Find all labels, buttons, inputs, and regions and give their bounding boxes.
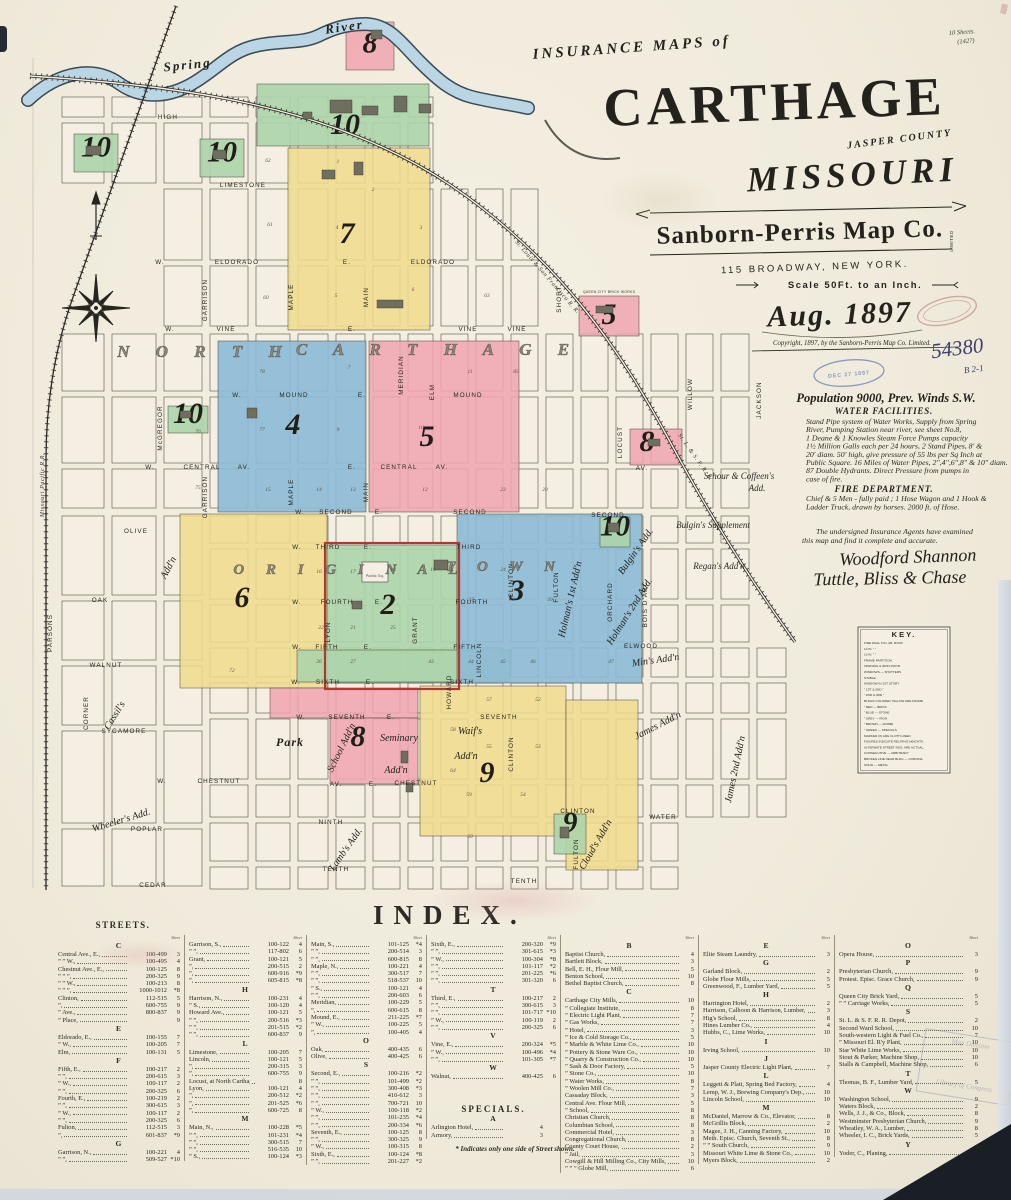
dotted-leader: [915, 1083, 963, 1084]
city-block: [651, 683, 678, 713]
index-entry-name: ” Marble & White Lime Co.,: [565, 1041, 639, 1048]
key-line: FIGURES INDICATE RELATIVE HEIGHTS: [864, 740, 923, 744]
dotted-leader: [202, 1007, 249, 1008]
dotted-leader: [627, 1068, 679, 1069]
street-label: FIFTH: [315, 644, 338, 651]
index-entry-name: ” ”,: [431, 977, 440, 984]
index-row: Grant,100-1215: [189, 956, 302, 963]
index-entry-range: 200-516: [251, 1017, 289, 1024]
dotted-leader: [633, 1039, 679, 1040]
street-label: GRANT: [412, 616, 419, 644]
index-entry-range: 201-225: [505, 970, 543, 977]
city-block: [164, 829, 202, 886]
index-row: Mound, E.,211-225*7: [311, 1014, 422, 1021]
block-number: 12: [422, 487, 428, 493]
index-entry-sheet: 7: [965, 1032, 978, 1039]
index-row: Fifth, E.,100-2172: [58, 1066, 180, 1073]
index-entry-sheet: *9: [167, 1132, 180, 1139]
index-entry-range: 200-615: [129, 1073, 167, 1080]
index-entry-sheet: 9: [965, 1118, 978, 1125]
block-number: 25: [390, 625, 396, 631]
area-label: Park: [276, 735, 304, 749]
index-entry-range: 100-499: [129, 951, 167, 958]
index-entry-name: ” ”,: [431, 970, 440, 977]
index-entry-range: 301-615: [505, 948, 543, 955]
title-publisher-suffix: LIMITED: [949, 230, 954, 252]
dotted-leader: [200, 1144, 249, 1145]
index-entry-sheet: *10: [543, 1009, 556, 1016]
area-label: Add'n: [453, 751, 477, 762]
index-letter-header: G: [58, 1139, 180, 1149]
street-label: CLINTON: [560, 808, 595, 815]
index-row: ” Ice & Cold Storage Co.,5: [565, 1034, 694, 1041]
dotted-leader: [207, 960, 249, 961]
index-entry-sheet: 10: [409, 1100, 422, 1107]
dotted-leader: [598, 1075, 679, 1076]
index-entry-sheet: 5: [965, 1132, 978, 1139]
index-entry-sheet: 2: [167, 1095, 180, 1102]
title-publisher: Sanborn-Perris Map Co.: [656, 215, 943, 249]
index-row: ” ”,200-6153: [58, 1073, 180, 1080]
dotted-leader: [475, 1129, 503, 1130]
index-entry-name: McGrillis Block,: [703, 1120, 746, 1127]
fire-department-title: FIRE DEPARTMENT.: [834, 484, 934, 494]
index-entry-name: Christian Church,: [565, 1114, 610, 1121]
city-block: [721, 648, 749, 677]
area-label: Seminary: [380, 733, 418, 744]
city-block: [298, 719, 328, 779]
index-entry-name: Wells, J. J., & Co., Block,: [839, 1110, 905, 1117]
note-line: Ladder Truck, drawn by horses. 2000 ft. …: [805, 502, 959, 511]
index-entry-name: Garrison, N.,: [58, 1149, 91, 1156]
city-block: [441, 189, 468, 260]
block-number: 58: [450, 727, 456, 733]
city-block: [164, 731, 202, 823]
index-entry-range: 3: [505, 1132, 543, 1139]
index-entry-range: 100-213: [129, 980, 167, 987]
dotted-leader: [322, 1104, 369, 1105]
dotted-leader: [69, 1107, 127, 1108]
index-row: Howard Ave.,100-1215: [189, 1009, 302, 1016]
index-row: ” ”,300-3259: [311, 1136, 422, 1143]
index-letter-header: W: [431, 1063, 556, 1073]
dotted-leader: [607, 956, 679, 957]
index-entry-name: ” ” W.,: [58, 980, 75, 987]
street-label: WALNUT: [90, 662, 123, 669]
index-entry-name: Chestnut Ave., E.,: [58, 966, 104, 973]
city-block: [62, 829, 104, 886]
index-row: ” ”,101-305*7: [431, 1056, 556, 1063]
index-row: Bethel Baptist Church,8: [565, 980, 694, 987]
dotted-leader: [322, 982, 369, 983]
index-entry-name: Wheatley, W. A., Lumber,: [839, 1125, 905, 1132]
index-entry-sheet: 2: [817, 1000, 830, 1007]
index-entry-sheet: *3: [543, 948, 556, 955]
block-number: 21: [350, 625, 356, 631]
index-entry-sheet: 5: [965, 993, 978, 1000]
dotted-leader: [921, 1059, 963, 1060]
index-entry-name: ”,: [189, 1100, 193, 1107]
street-label: HIGH: [158, 114, 178, 121]
index-entry-sheet: 2: [817, 1157, 830, 1164]
index-entry-name: Maple, N.,: [311, 963, 338, 970]
dotted-leader: [200, 1151, 249, 1152]
index-entry-sheet: 6: [409, 1053, 422, 1060]
street-label: LIMESTONE: [220, 182, 266, 189]
page-edge-bottom: [0, 1189, 1011, 1200]
index-entry-name: ” ”,: [431, 1056, 440, 1063]
dotted-leader: [616, 1134, 679, 1135]
street-label: FULTON: [553, 571, 560, 602]
index-entry-name: ” ”,: [431, 1009, 440, 1016]
dotted-leader: [458, 1000, 504, 1001]
index-row: Globe Flour Mills,5: [703, 976, 830, 983]
index-row: ” ”,301-615*3: [431, 948, 556, 955]
index-entry-sheet: 3: [289, 1063, 302, 1070]
street-label: SEVENTH: [480, 714, 517, 721]
dotted-leader: [83, 1071, 127, 1072]
index-row: Maple, N.,100-2214: [311, 963, 422, 970]
index-entry-range: 410-612: [371, 1092, 409, 1099]
street-label: CEDAR: [139, 882, 167, 889]
index-entry-range: 301-320: [505, 977, 543, 984]
dotted-leader: [200, 953, 249, 954]
city-block: [546, 469, 573, 508]
block-number: 19: [430, 567, 436, 573]
index-entry-sheet: 3: [543, 1002, 556, 1009]
index-entry-sheet: 4: [817, 1081, 830, 1088]
dotted-leader: [102, 956, 127, 957]
index-entry-sheet: 8: [681, 1078, 694, 1085]
city-block: [112, 469, 156, 508]
dotted-leader: [925, 1037, 963, 1038]
index-entry-sheet: 3: [167, 1102, 180, 1109]
block-number: 2: [372, 187, 375, 193]
dotted-leader: [895, 973, 963, 974]
street-label: E.: [366, 679, 374, 686]
index-letter-header: T: [431, 985, 556, 995]
dotted-leader: [750, 1005, 815, 1006]
key-line: ” 1ST & 2ND ”: [864, 687, 883, 691]
street-label: SECOND: [591, 512, 625, 519]
index-row: ” W.,100-118*2: [311, 1107, 422, 1114]
index-row: Stout & Parker, Machine Shop,10: [839, 1054, 978, 1061]
dotted-leader: [336, 946, 369, 947]
block-number: 76: [195, 429, 201, 435]
city-block: [112, 397, 156, 463]
dotted-leader: [455, 1046, 503, 1047]
index-row: ” Stone Co.,10: [565, 1070, 694, 1077]
sheet-number: 5: [602, 298, 617, 331]
dotted-leader: [77, 963, 127, 964]
dotted-leader: [795, 1069, 815, 1070]
index-entry-name: Fifth, E.,: [58, 1066, 81, 1073]
building-footprint: [303, 112, 312, 119]
index-row: Chestnut Ave., E.,100-1258: [58, 966, 180, 973]
dotted-leader: [767, 1034, 815, 1035]
index-entry-name: ” Gas Works,: [565, 1019, 599, 1026]
building-footprint: [560, 827, 569, 838]
dotted-leader: [748, 1125, 815, 1126]
index-entry-name: ” Ice & Cold Storage Co.,: [565, 1034, 631, 1041]
index-entry-name: Second, E.,: [311, 1070, 340, 1077]
index-row: Harrington Hotel,2: [703, 1000, 830, 1007]
city-block: [441, 266, 468, 326]
street-label: NINTH: [319, 819, 344, 826]
dotted-leader: [907, 1130, 963, 1131]
street-label: CLINTON: [508, 736, 515, 771]
index-entry-sheet: 7: [409, 970, 422, 977]
index-entry-sheet: 2: [543, 995, 556, 1002]
dotted-leader: [73, 992, 127, 993]
index-entry-sheet: *4: [543, 1049, 556, 1056]
index-entry-name: Howard Ave.,: [189, 1009, 224, 1016]
city-block: [757, 648, 786, 677]
index-entry-name: ” ”,: [58, 1073, 67, 1080]
index-row: ” ”,300-408*3: [311, 1085, 422, 1092]
sheet-number: 4: [285, 408, 301, 441]
block-number: 7: [348, 365, 351, 371]
dotted-leader: [206, 1090, 249, 1091]
index-row: ” Collegiate Institute,8: [565, 1005, 694, 1012]
index-row: ” W.,100-1172: [58, 1080, 180, 1087]
index-entry-name: ” ”,: [311, 948, 320, 955]
index-entry-sheet: 6: [167, 1088, 180, 1095]
index-row: Hubbs, C., Lime Works,10: [703, 1029, 830, 1036]
key-line: BROKEN LINE NEAR BLDG — CORNICE: [864, 757, 923, 761]
index-row: ” Pottery & Stone Ware Co.,10: [565, 1049, 694, 1056]
dotted-leader: [759, 956, 815, 957]
street-label: W.: [232, 392, 242, 399]
city-block: [62, 516, 104, 595]
index-row: Lincoln School,10: [703, 1096, 830, 1103]
block-number: 62: [265, 158, 271, 164]
city-block: [651, 823, 678, 861]
dotted-leader: [930, 1066, 963, 1067]
index-row: Armory,3: [431, 1132, 556, 1139]
index-entry-sheet: 5: [167, 1049, 180, 1056]
index-letter-header: E: [58, 1024, 180, 1034]
building-footprint: [322, 170, 335, 179]
block-number: 13: [350, 487, 356, 493]
population-line: Population 9000, Prev. Winds S.W.: [796, 391, 975, 405]
index-entry-name: ” ”,: [311, 1078, 320, 1085]
index-row: Christian Church,8: [565, 1114, 694, 1121]
dotted-leader: [195, 975, 249, 976]
index-row: Harrison, Calhoon & Harrison, Lumber,3: [703, 1007, 830, 1014]
dotted-leader: [87, 1100, 127, 1101]
index-entry-sheet: 2: [289, 963, 302, 970]
city-block: [256, 867, 290, 889]
index-entry-name: Elite Steam Laundry,: [703, 951, 757, 958]
index-entry-name: Baptist Church,: [565, 951, 605, 958]
index-entry-range: 600-837: [251, 1031, 289, 1038]
index-entry-sheet: 3: [681, 1027, 694, 1034]
street-label: JACKSON: [756, 381, 763, 418]
street-label: W.: [295, 509, 305, 516]
index-entry-range: 516-535: [251, 1146, 289, 1153]
dotted-leader: [72, 1053, 127, 1054]
street-label: WATER: [649, 814, 677, 821]
index-entry-name: ”,: [189, 970, 193, 977]
dotted-leader: [220, 1053, 249, 1054]
note-line: The undersigned Insurance Agents have ex…: [816, 527, 973, 536]
dotted-leader: [799, 1086, 815, 1087]
index-entry-name: Bethel Baptist Church,: [565, 980, 623, 987]
index-entry-name: South-western Light & Fuel Co.,: [839, 1032, 923, 1039]
index-row: ” Place,9: [58, 1017, 180, 1024]
key-line: 13 IN. ” ”: [864, 653, 876, 657]
index-entry-range: 100-205: [251, 1049, 289, 1056]
index-entry-name: Wheeler, I. C., Brick Yards,: [839, 1132, 910, 1139]
city-block: [651, 867, 678, 889]
dotted-leader: [643, 1061, 679, 1062]
index-entry-range: 100-496: [505, 1049, 543, 1056]
key-line: FIRE WALL 5 IN. AB. ROOF: [864, 641, 903, 645]
index-entry-name: ” ”,: [431, 1002, 440, 1009]
index-row: Garrison, S.,100-1224: [189, 941, 302, 948]
building-footprint: [401, 751, 408, 763]
dotted-leader: [442, 982, 503, 983]
dotted-leader: [81, 1000, 127, 1001]
index-entry-name: Central Ave. Flour Mill,: [565, 1100, 626, 1107]
index-entry-sheet: 4: [817, 1022, 830, 1029]
index-entry-sheet: 2: [817, 968, 830, 975]
dotted-leader: [442, 975, 503, 976]
index-row: South-western Light & Fuel Co.,7: [839, 1032, 978, 1039]
index-row: ” ”,101-117*2: [431, 963, 556, 970]
index-row: Carthage City Mills,10: [565, 997, 694, 1004]
index-entry-range: 509-527: [129, 1156, 167, 1163]
index-row: Wheatley, W. A., Lumber,8: [839, 1125, 978, 1132]
index-entry-sheet: 9: [289, 1031, 302, 1038]
block-number: 50: [467, 834, 473, 840]
index-entry-range: 200-334: [371, 1122, 409, 1129]
index-entry-name: Clinton,: [58, 995, 79, 1002]
street-label: MERIDIAN: [398, 355, 405, 395]
city-block: [686, 683, 713, 713]
index-entry-range: 600-755: [251, 1070, 289, 1077]
index-entry-name: Eldorado, E.,: [58, 1034, 92, 1041]
index-row: ” ”,516-53510: [189, 1146, 302, 1153]
index-entry-range: 100-121: [251, 1056, 289, 1063]
index-row: ” Sash & Door Factory,5: [565, 1063, 694, 1070]
key-line: MARKED (X) ARE CLOTH LINED: [864, 734, 911, 738]
city-block: [62, 469, 104, 508]
dotted-leader: [329, 1058, 369, 1059]
index-entry-range: 300-517: [371, 970, 409, 977]
index-entry-range: 400-435: [371, 1046, 409, 1053]
index-entry-range: 700-721: [371, 1100, 409, 1107]
block-number: 55: [486, 744, 492, 750]
index-row: ” ”,200-516*3: [189, 1017, 302, 1024]
dotted-leader: [876, 956, 963, 957]
index-entry-name: ” Sash & Door Factory,: [565, 1063, 625, 1070]
index-letter-header: W: [839, 1086, 978, 1096]
index-title: INDEX.: [373, 900, 527, 931]
block-number: 18: [390, 567, 396, 573]
key-line: ALTERNATE STREET NOS. ARE ACTUAL,: [864, 745, 924, 749]
dotted-leader: [623, 1017, 679, 1018]
area-label: Waif's: [458, 726, 482, 737]
city-block: [256, 266, 290, 326]
city-block: [686, 648, 713, 677]
index-row: ” Missouri El. R'y Plant,10: [839, 1039, 978, 1046]
dotted-leader: [73, 978, 127, 979]
index-entry-range: 100-217: [505, 995, 543, 1002]
index-entry-sheet: 8: [681, 1005, 694, 1012]
sanborn-map-sheet: 8101010754510623810899 HIGHLIME: [0, 0, 1011, 1200]
dotted-leader: [342, 1075, 369, 1076]
building-footprint: [648, 439, 660, 446]
index-row: ” ”,518-53710: [311, 977, 422, 984]
accession-sub: B 2-1: [963, 363, 984, 375]
index-row: Garland Block,2: [703, 968, 830, 975]
index-letter-header: L: [703, 1071, 830, 1081]
city-block: [581, 469, 608, 508]
dotted-leader: [342, 1019, 369, 1020]
dotted-leader: [73, 1085, 127, 1086]
sheet-col-label: Sheet: [703, 935, 830, 940]
index-entry-name: Fulton,: [58, 1124, 76, 1131]
dotted-leader: [605, 963, 679, 964]
index-row: ” Hotel,3: [565, 1027, 694, 1034]
dotted-leader: [252, 1083, 255, 1084]
dotted-leader: [317, 1011, 369, 1012]
index-entry-range: 300-615: [129, 1102, 167, 1109]
index-entry-name: Waters Block,: [839, 1103, 875, 1110]
index-entry-sheet: 10: [817, 1047, 830, 1054]
index-entry-sheet: 3: [681, 958, 694, 965]
index-entry-sheet: 10: [289, 1146, 302, 1153]
index-entry-name: Protest. Episc. Grace Church,: [839, 976, 915, 983]
street-label: POPLAR: [131, 826, 163, 833]
index-entry-range: 100-155: [129, 1034, 167, 1041]
block-number: 37: [467, 597, 474, 603]
dotted-leader: [322, 1126, 369, 1127]
index-row: ” ”,201-515*2: [189, 1024, 302, 1031]
index-entry-sheet: 10: [817, 1150, 830, 1157]
index-row: Locust, at North Carthage,8: [189, 1078, 302, 1085]
city-block: [721, 549, 749, 599]
index-entry-name: Mound, E.,: [311, 1014, 340, 1021]
index-entry-sheet: *7: [409, 1014, 422, 1021]
index-entry-name: Yoder, C., Planing,: [839, 1150, 887, 1157]
index-entry-name: ” ”,: [189, 1139, 198, 1146]
city-block: [408, 867, 433, 889]
index-row: ”,600-916*9: [189, 970, 302, 977]
dotted-leader: [746, 1101, 815, 1102]
index-entry-sheet: *2: [409, 1070, 422, 1077]
key-line: FRAME PARTITION: [864, 658, 892, 662]
index-letter-header: Q: [839, 983, 978, 993]
index-entry-name: ” W.,: [58, 1080, 71, 1087]
index-entry-sheet: *9: [289, 970, 302, 977]
index-row: ” W.,100-304*8: [431, 956, 556, 963]
index-entry-name: Stalls & Campbell, Machine Shop,: [839, 1061, 928, 1068]
street-label: SEVENTH: [328, 714, 365, 721]
date-received-text: DEC 27 1897: [828, 370, 870, 380]
key-line: 12 IN. ” ”: [864, 647, 876, 651]
block-number: 38: [508, 597, 515, 603]
street-label: MAIN: [363, 482, 370, 502]
street-label: E.: [375, 599, 383, 606]
block-number: 45: [500, 659, 506, 665]
dotted-leader: [326, 1026, 369, 1027]
index-row: Commercial Hotel,3: [565, 1129, 694, 1136]
notes-block: Population 9000, Prev. Winds S.W. WATER …: [796, 391, 1007, 589]
dotted-leader: [912, 1137, 963, 1138]
